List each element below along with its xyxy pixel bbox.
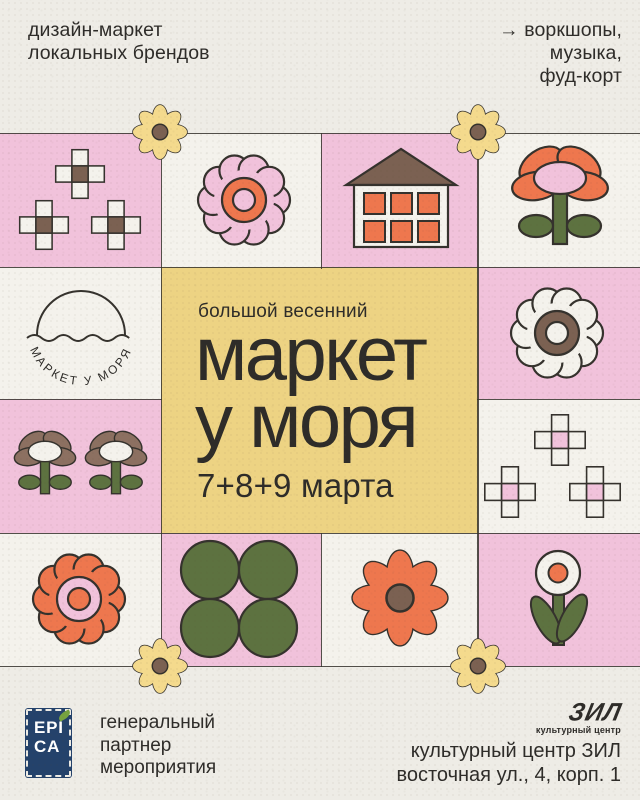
ring-flower-icon [31, 551, 127, 647]
market-u-morya-logo-icon: МАРКЕТ У МОРЯ [21, 283, 141, 395]
plus-squares-icon [532, 412, 588, 468]
epica-logo: EPI CA [25, 708, 72, 778]
grid-line [321, 533, 323, 667]
event-dates: 7+8+9 марта [197, 467, 394, 505]
stem-flower-icon [505, 545, 615, 655]
epica-logo-line1: EPI [34, 718, 72, 737]
daisy-flower-icon [132, 638, 188, 694]
venue-address-line1: культурный центр ЗИЛ [396, 740, 621, 764]
grid-line [161, 133, 163, 667]
logo-arc-text: МАРКЕТ У МОРЯ [27, 344, 135, 388]
oval-petal-flower-icon [84, 431, 148, 495]
plus-squares-icon [53, 147, 107, 201]
grid-line [477, 399, 640, 401]
oval-petal-flower-icon [13, 431, 77, 495]
partner-text: генеральный партнер мероприятия [100, 712, 216, 780]
tagline-right: → воркшопы, музыка, фуд-корт [499, 19, 622, 88]
daisy-flower-icon [351, 549, 449, 647]
poster-background: дизайн-маркет локальных брендов → воркшо… [0, 0, 640, 800]
venue-address-line2: восточная ул., 4, корп. 1 [396, 764, 621, 788]
plus-squares-icon [89, 198, 143, 252]
epica-logo-line2: CA [34, 737, 72, 756]
ring-flower-icon [509, 285, 605, 381]
plus-squares-icon [482, 464, 538, 520]
daisy-flower-icon [132, 104, 188, 160]
event-title: маркет у моря [195, 321, 425, 455]
zil-logo-text: ЗИЛ [566, 698, 624, 727]
house-icon [343, 146, 459, 250]
svg-text:МАРКЕТ У МОРЯ: МАРКЕТ У МОРЯ [27, 344, 135, 388]
daisy-flower-icon [450, 638, 506, 694]
grid-line [477, 133, 479, 667]
grid-line [321, 133, 323, 269]
grid-line [0, 399, 162, 401]
venue-address: культурный центр ЗИЛ восточная ул., 4, к… [396, 740, 621, 787]
plus-squares-icon [17, 198, 71, 252]
oval-petal-flower-icon [510, 146, 610, 246]
four-dots-icon [180, 536, 298, 654]
zil-logo: ЗИЛ культурный центр [536, 699, 621, 735]
ring-flower-icon [196, 152, 292, 248]
daisy-flower-icon [450, 104, 506, 160]
tagline-left: дизайн-маркет локальных брендов [28, 19, 210, 65]
plus-squares-icon [567, 464, 623, 520]
